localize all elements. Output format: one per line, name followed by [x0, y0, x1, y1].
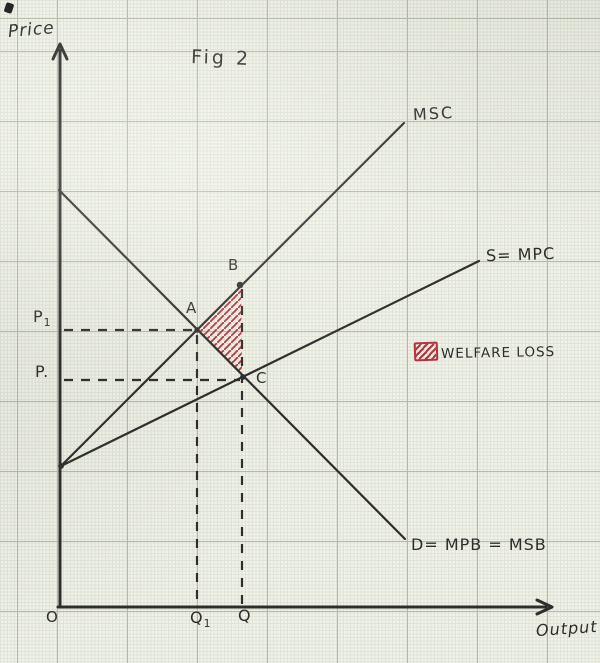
welfare-loss-legend-swatch [414, 342, 439, 362]
supply-curve-label: S= MPC [486, 246, 556, 264]
graph-paper-page: Price Fig 2 MSC S= MPC D= MPB = MSB A B … [0, 0, 600, 663]
q1-quantity-label: Q1 [190, 610, 211, 630]
point-c-label: C [256, 371, 267, 386]
point-a-dot [194, 327, 199, 332]
q1-quantity-base: Q [190, 608, 204, 627]
origin-label: O [46, 610, 59, 625]
demand-curve-label: D= MPB = MSB [411, 537, 547, 553]
p1-price-label: P1 [33, 309, 51, 329]
x-axis-label: Output [536, 619, 599, 639]
point-b-dot [237, 282, 244, 289]
p1-price-base: P [33, 307, 44, 326]
demand-curve [59, 190, 405, 539]
q1-quantity-subscript: 1 [204, 617, 211, 630]
q-quantity-label: Q [238, 608, 252, 624]
msc-curve [61, 123, 404, 466]
p1-price-subscript: 1 [44, 316, 51, 329]
p-price-label: P. [35, 364, 49, 380]
point-a-label: A [186, 301, 197, 316]
welfare-loss-area [199, 286, 242, 374]
figure-title: Fig 2 [191, 48, 252, 69]
diagram-canvas [0, 0, 600, 663]
point-b-label: B [228, 258, 239, 273]
welfare-loss-legend-label: WELFARE LOSS [441, 346, 555, 361]
y-axis-label: Price [7, 20, 55, 41]
supply-curve [61, 261, 479, 466]
curves-origin-dot [58, 463, 64, 469]
msc-curve-label: MSC [413, 105, 455, 123]
point-c-dot [240, 374, 246, 380]
